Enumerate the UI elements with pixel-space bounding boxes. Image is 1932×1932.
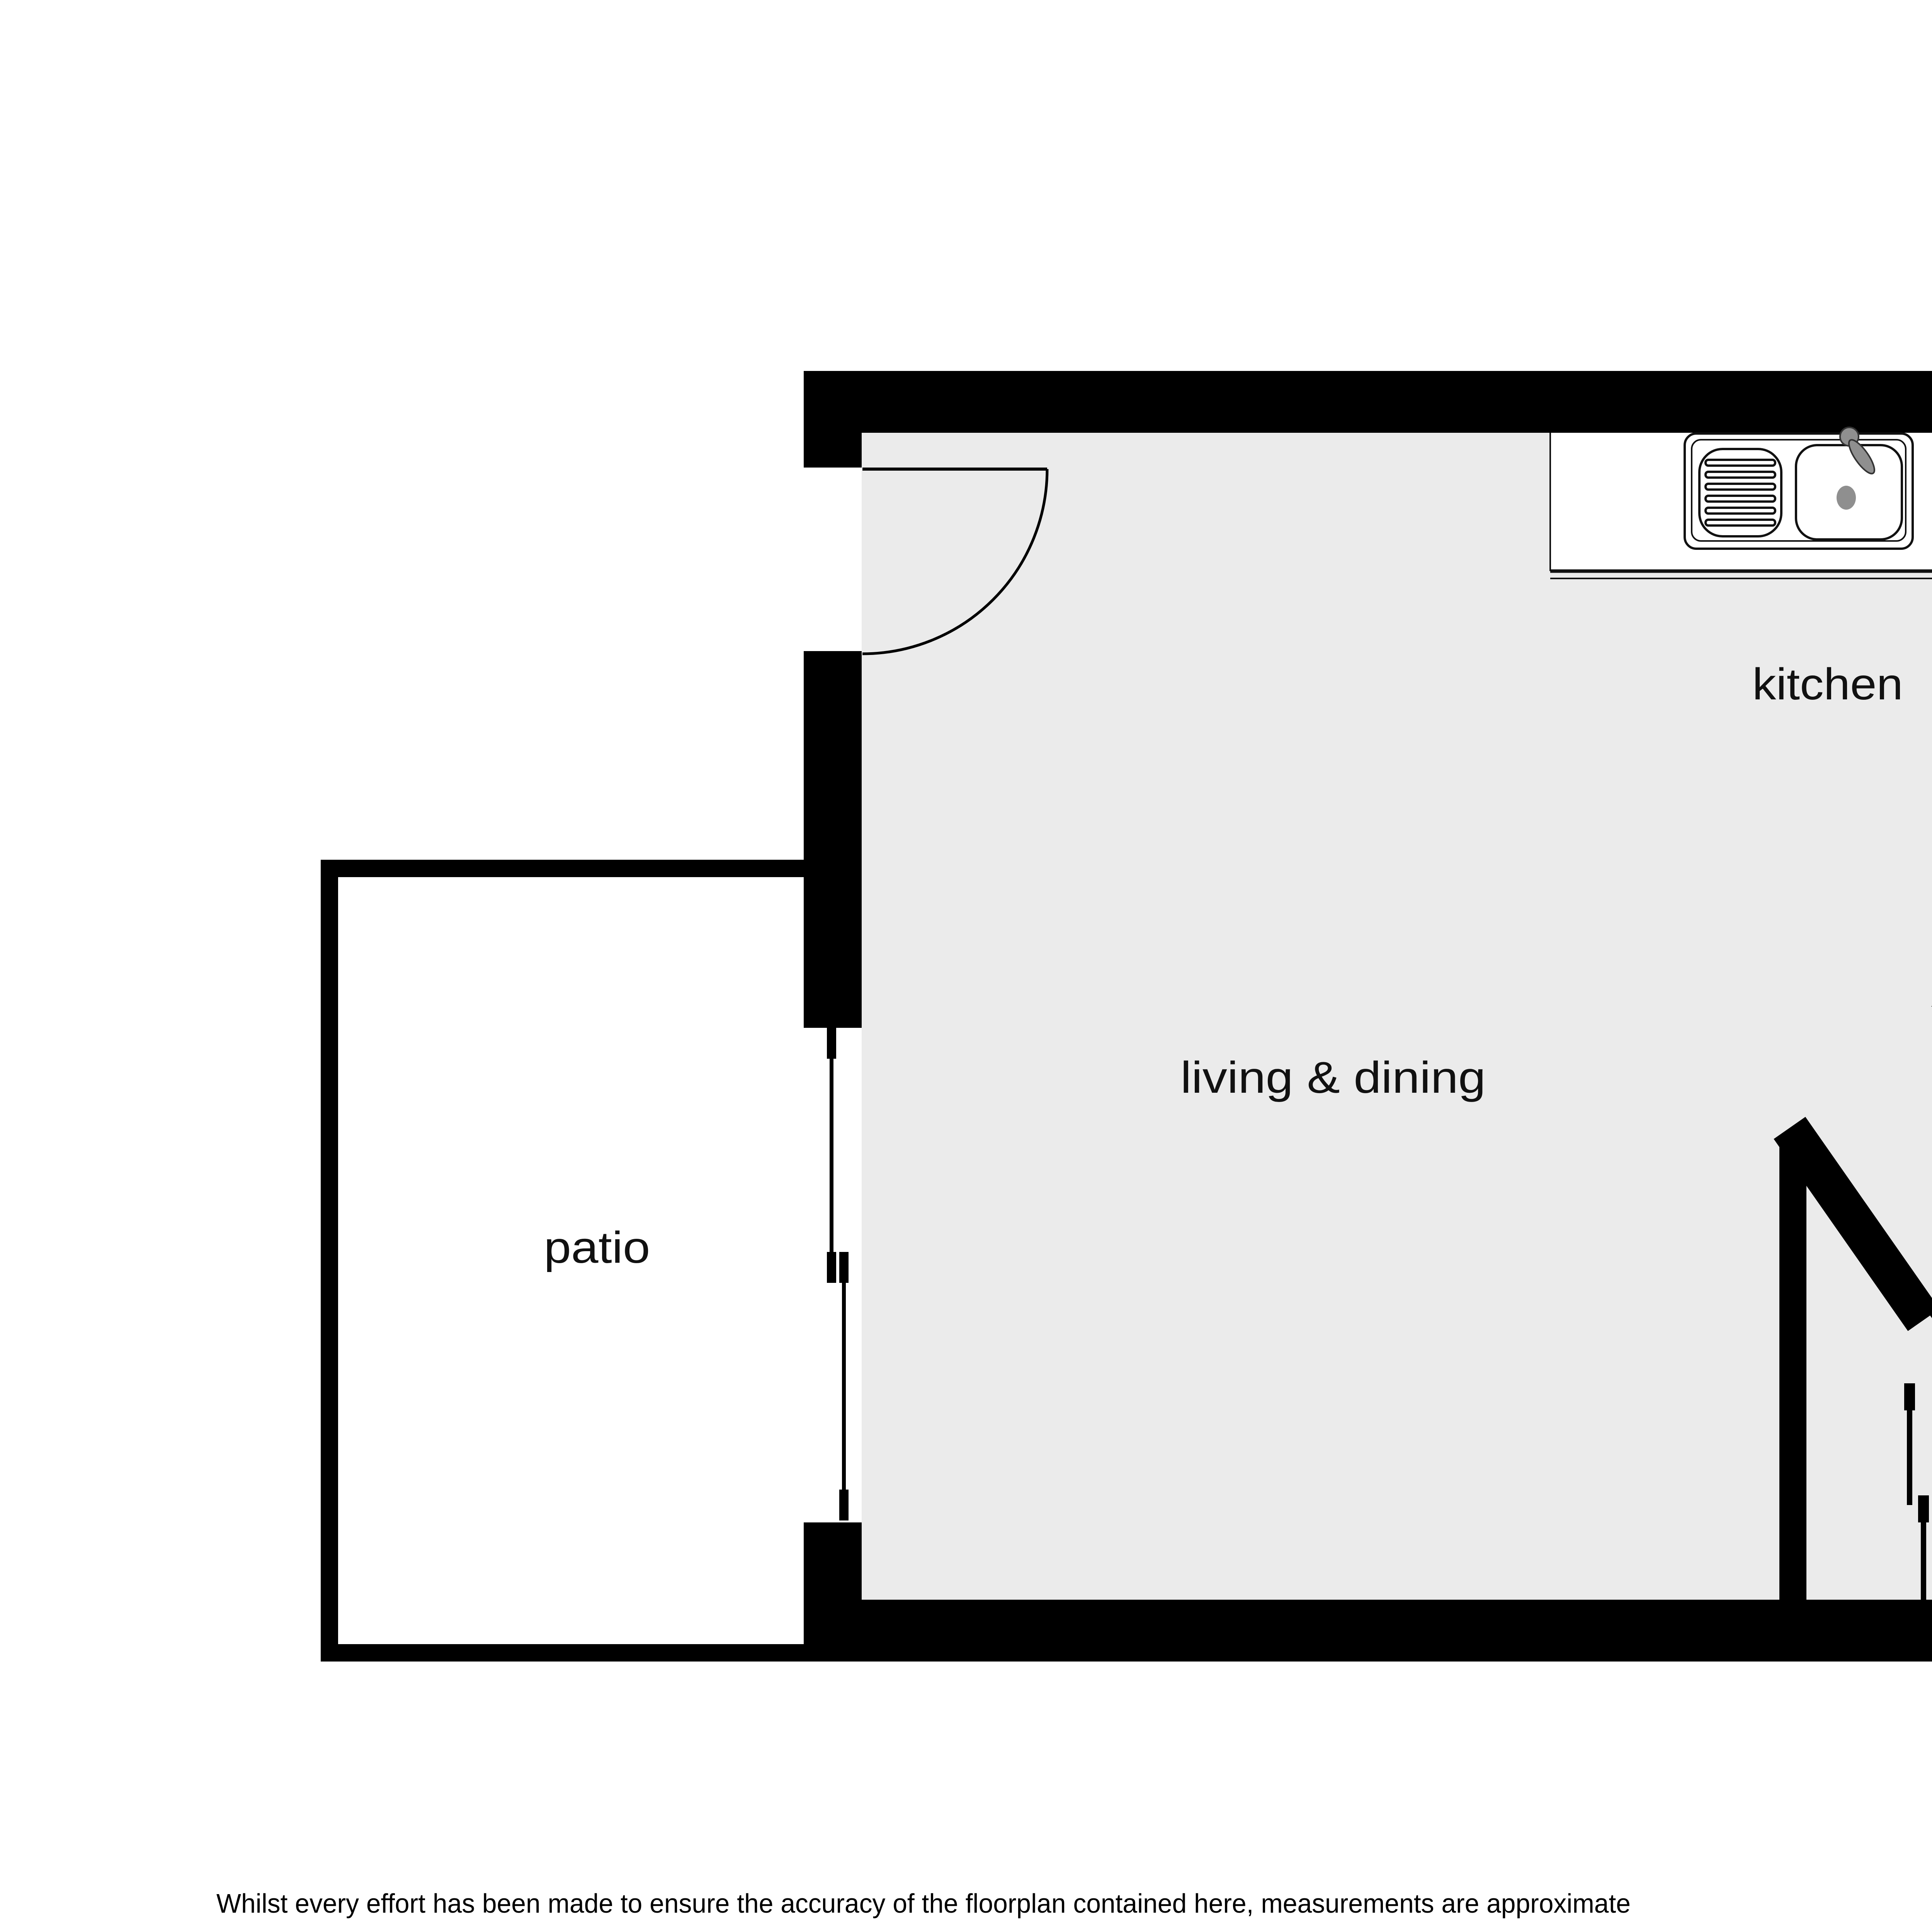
disclaimer: Whilst every effort has been made to ens… bbox=[216, 1888, 1631, 1932]
top-wall bbox=[804, 371, 1932, 433]
left-wall-upper bbox=[804, 371, 862, 468]
left-wall-lower bbox=[804, 1522, 862, 1662]
living-bed-wall bbox=[1779, 1140, 1806, 1600]
kitchen-sink-icon bbox=[1685, 427, 1913, 549]
floorplan-canvas: kitchen bath / l’dry living & dining pat… bbox=[0, 0, 1932, 1932]
bottom-wall bbox=[804, 1600, 1932, 1662]
patio-bottom-wall bbox=[321, 1644, 804, 1662]
patio-top-wall bbox=[321, 860, 804, 877]
disclaimer-line-1: Whilst every effort has been made to ens… bbox=[216, 1888, 1631, 1918]
left-wall-middle bbox=[804, 651, 862, 1028]
entry-door-opening bbox=[804, 468, 862, 651]
patio-label: patio bbox=[544, 1223, 650, 1272]
patio-left-wall bbox=[321, 860, 338, 1662]
disclaimer-line-2: and no responsibility is taken for any e… bbox=[216, 1929, 1505, 1932]
floorplan-page: kitchen bath / l’dry living & dining pat… bbox=[0, 0, 1932, 1932]
kitchen-label: kitchen bbox=[1752, 660, 1903, 709]
apartment-floor bbox=[862, 433, 1932, 1600]
living-dining-label: living & dining bbox=[1180, 1053, 1486, 1102]
